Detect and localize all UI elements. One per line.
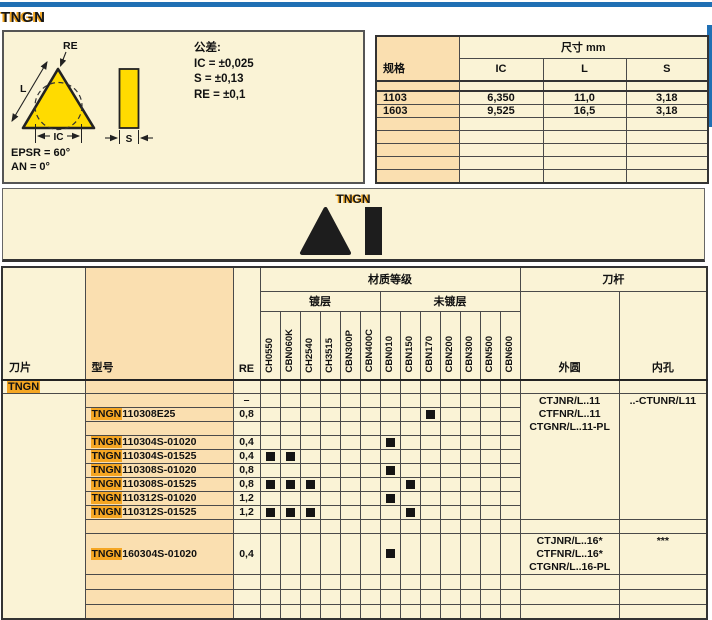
dimension-cell: [543, 144, 626, 157]
grade-mark-cell: [420, 463, 440, 477]
grade-mark-cell: [300, 463, 320, 477]
grade-mark-cell: [300, 491, 320, 505]
dimension-cell: [626, 144, 708, 157]
grade-mark-cell: [500, 393, 520, 407]
grade-mark-cell: [440, 463, 460, 477]
external-holder-cell: [520, 519, 619, 533]
grade-mark: [266, 452, 275, 461]
dimension-cell: 9,525: [459, 105, 543, 118]
grade-column-header: CBN300: [460, 311, 480, 380]
grade-group-header: 材质等级: [260, 267, 520, 291]
model-prefix: TNGN: [91, 450, 123, 462]
internal-holder-cell: ***: [619, 533, 707, 574]
grade-mark-cell: [460, 407, 480, 421]
model-prefix: TNGN: [91, 464, 123, 476]
grade-mark-cell: [260, 589, 280, 604]
grade-mark-cell: [480, 449, 500, 463]
grade-mark-cell: [300, 421, 320, 435]
grade-mark-cell: [320, 407, 340, 421]
grade-mark-cell: [400, 604, 420, 619]
s-column-header: S: [626, 58, 708, 81]
grade-mark: [386, 438, 395, 447]
grade-mark-cell: [320, 505, 340, 519]
model-prefix: TNGN: [91, 408, 123, 420]
external-column-header: 外圆: [520, 291, 619, 380]
external-holder-cell: [520, 574, 619, 589]
grade-mark-cell: [480, 380, 500, 394]
internal-holder-cell: [619, 604, 707, 619]
grade-mark-cell: [420, 533, 440, 574]
dimension-table: 规格 尺寸 mm IC L S 11036,35011,03,1816039,5…: [375, 35, 709, 184]
grade-mark-cell: [400, 463, 420, 477]
grade-mark-cell: [300, 407, 320, 421]
grade-mark-cell: [360, 380, 380, 394]
re-cell: [233, 519, 260, 533]
dimension-cell: 16,5: [543, 105, 626, 118]
band-title: TNGN: [3, 192, 704, 206]
grade-mark-cell: [260, 380, 280, 394]
an-note: AN = 0°: [11, 161, 50, 173]
grade-mark-cell: [420, 491, 440, 505]
grade-mark-cell: [340, 574, 360, 589]
spec-cell: [376, 157, 459, 170]
grade-mark-cell: [320, 589, 340, 604]
grade-mark-cell: [480, 421, 500, 435]
table-row: [2, 589, 707, 604]
grade-column-header: CBN170: [420, 311, 440, 380]
grade-mark-cell: [480, 505, 500, 519]
grade-mark-cell: [480, 393, 500, 407]
grade-column-header: CBN060K: [280, 311, 300, 380]
grade-mark-cell: [460, 449, 480, 463]
table-row: 11036,35011,03,18: [376, 91, 708, 105]
table-row: [376, 118, 708, 131]
table-row: [376, 170, 708, 183]
grade-mark-cell: [320, 449, 340, 463]
grade-mark-cell: [380, 477, 400, 491]
grade-mark-cell: [420, 505, 440, 519]
dimension-cell: [459, 81, 543, 91]
model-cell: TNGN110308E25: [85, 407, 233, 421]
grade-mark-cell: [500, 421, 520, 435]
external-holder-cell: CTJNR/L..16*CTFNR/L..16*CTGNR/L..16-PL: [520, 533, 619, 574]
grade-mark-cell: [380, 449, 400, 463]
grade-mark-cell: [440, 574, 460, 589]
dimension-cell: [626, 170, 708, 183]
grade-mark-cell: [260, 463, 280, 477]
grade-mark-cell: [280, 407, 300, 421]
grade-mark-cell: [380, 407, 400, 421]
model-prefix: TNGN: [91, 478, 123, 490]
dimension-cell: [543, 157, 626, 170]
re-dimension-label: RE: [63, 40, 78, 52]
grade-mark-cell: [500, 533, 520, 574]
dimension-cell: [543, 118, 626, 131]
section-cell: TNGN: [2, 380, 85, 394]
grade-mark-cell: [480, 574, 500, 589]
grade-mark-cell: [280, 463, 300, 477]
grade-mark-cell: [460, 505, 480, 519]
grade-name: CH0550: [265, 338, 275, 373]
grade-mark-cell: [320, 519, 340, 533]
grade-mark-cell: [280, 589, 300, 604]
grade-name: CBN500: [485, 336, 495, 372]
grade-mark: [386, 549, 395, 558]
s-dimension-label: S: [126, 134, 133, 145]
dimension-cell: [543, 81, 626, 91]
grade-mark-cell: [340, 463, 360, 477]
model-cell: TNGN110308S-01525: [85, 477, 233, 491]
grade-name: CBN060K: [285, 329, 295, 372]
table-row: –CTJNR/L..11CTFNR/L..11CTGNR/L..11-PL..-…: [2, 393, 707, 407]
grade-mark-cell: [360, 393, 380, 407]
insert-dimension-drawing: L RE IC S EPSR = 60° AN = 0°: [4, 32, 361, 178]
grade-mark-cell: [440, 435, 460, 449]
grade-mark-cell: [280, 380, 300, 394]
re-cell: 0,4: [233, 435, 260, 449]
grade-mark-cell: [400, 589, 420, 604]
grade-mark-cell: [340, 533, 360, 574]
triangle-insert-icon: [302, 209, 349, 253]
dimension-cell: [543, 170, 626, 183]
grade-mark-cell: [380, 393, 400, 407]
grade-mark-cell: [340, 589, 360, 604]
grade-mark-cell: [460, 393, 480, 407]
epsr-note: EPSR = 60°: [11, 147, 70, 159]
internal-holder-cell: [619, 574, 707, 589]
grade-mark-cell: [260, 533, 280, 574]
model-cell: [85, 519, 233, 533]
spec-cell: [376, 144, 459, 157]
grade-mark-cell: [500, 407, 520, 421]
grade-mark-cell: [300, 435, 320, 449]
model-prefix: TNGN: [91, 436, 123, 448]
grade-mark-cell: [260, 505, 280, 519]
l-column-header: L: [543, 58, 626, 81]
grade-mark-cell: [400, 380, 420, 394]
grade-mark-cell: [500, 574, 520, 589]
grade-name: CBN170: [425, 336, 435, 372]
grade-mark-cell: [440, 407, 460, 421]
dimension-cell: [626, 118, 708, 131]
grade-column-header: CBN500: [480, 311, 500, 380]
l-dimension-label: L: [20, 83, 27, 95]
grade-mark-cell: [320, 604, 340, 619]
grade-mark-cell: [460, 589, 480, 604]
grade-mark-cell: [400, 505, 420, 519]
re-cell: –: [233, 393, 260, 407]
re-cell: 1,2: [233, 491, 260, 505]
grade-mark-cell: [480, 604, 500, 619]
grade-mark-cell: [380, 421, 400, 435]
grade-mark-cell: [280, 574, 300, 589]
grade-mark-cell: [420, 393, 440, 407]
grade-mark-cell: [260, 449, 280, 463]
holder-line: CTFNR/L..11: [521, 408, 619, 421]
holder-line: CTFNR/L..16*: [521, 548, 619, 561]
spec-cell: [376, 81, 459, 91]
grade-name: CH3515: [325, 338, 335, 373]
dimension-mm-header: 尺寸 mm: [459, 36, 708, 58]
internal-holder-cell: [619, 519, 707, 533]
grade-mark-cell: [460, 491, 480, 505]
grade-mark-cell: [320, 491, 340, 505]
grade-mark-cell: [340, 477, 360, 491]
model-cell: TNGN110312S-01525: [85, 505, 233, 519]
grade-mark-cell: [320, 463, 340, 477]
grade-mark-cell: [360, 604, 380, 619]
grade-mark-cell: [460, 463, 480, 477]
grade-mark-cell: [480, 589, 500, 604]
grade-mark: [306, 480, 315, 489]
re-leader-line: [61, 52, 67, 66]
grade-mark-cell: [400, 491, 420, 505]
grade-column-header: CH2540: [300, 311, 320, 380]
model-column-header: 型号: [85, 267, 233, 380]
grade-mark-cell: [340, 491, 360, 505]
table-row: [376, 157, 708, 170]
insert-shape-band: TNGN: [2, 188, 705, 262]
grade-mark-cell: [500, 491, 520, 505]
grade-mark-cell: [300, 505, 320, 519]
uncoated-group-header: 未镀层: [380, 291, 520, 311]
re-cell: 0,8: [233, 477, 260, 491]
grade-mark-cell: [420, 380, 440, 394]
grade-mark: [266, 508, 275, 517]
dimension-cell: [626, 131, 708, 144]
grade-mark-cell: [280, 491, 300, 505]
grade-mark-cell: [320, 477, 340, 491]
grade-name: CBN200: [445, 336, 455, 372]
grade-column-header: CBN600: [500, 311, 520, 380]
grade-mark-cell: [500, 449, 520, 463]
grade-mark-cell: [460, 380, 480, 394]
grade-mark-cell: [360, 505, 380, 519]
model-prefix: TNGN: [91, 548, 123, 560]
grade-mark-cell: [300, 589, 320, 604]
bar-insert-icon: [365, 207, 382, 255]
insert-drawing-panel: L RE IC S EPSR = 60° AN = 0° 公差: IC = ±0…: [2, 30, 365, 184]
grade-mark-cell: [380, 435, 400, 449]
grade-mark-cell: [340, 407, 360, 421]
grade-mark-cell: [340, 604, 360, 619]
grade-mark-cell: [300, 574, 320, 589]
ic-dimension-label: IC: [54, 132, 64, 143]
model-cell: [85, 574, 233, 589]
grade-mark-cell: [500, 505, 520, 519]
table-row: [2, 604, 707, 619]
grade-mark-cell: [500, 435, 520, 449]
grade-mark-cell: [420, 519, 440, 533]
dimension-cell: [626, 157, 708, 170]
model-cell: [85, 589, 233, 604]
grade-mark-cell: [360, 435, 380, 449]
re-column-header: RE: [233, 267, 260, 380]
grade-mark-cell: [360, 589, 380, 604]
grade-mark-cell: [260, 491, 280, 505]
toolholder-group-header: 刀杆: [520, 267, 707, 291]
model-cell: TNGN110308S-01020: [85, 463, 233, 477]
tolerance-s: S = ±0,13: [194, 72, 254, 88]
grade-mark-cell: [360, 463, 380, 477]
grade-mark-cell: [360, 574, 380, 589]
ic-column-header: IC: [459, 58, 543, 81]
grade-mark-cell: [280, 435, 300, 449]
grade-mark-cell: [460, 604, 480, 619]
grade-mark: [306, 508, 315, 517]
holder-line: CTGNR/L..11-PL: [521, 421, 619, 434]
grade-column-header: CBN300P: [340, 311, 360, 380]
coated-group-header: 镀层: [260, 291, 380, 311]
re-cell: 0,8: [233, 463, 260, 477]
grade-mark-cell: [380, 491, 400, 505]
internal-holder-cell: [619, 380, 707, 394]
grade-mark: [406, 480, 415, 489]
grade-mark-cell: [480, 463, 500, 477]
grade-mark-cell: [420, 435, 440, 449]
grade-column-header: CBN200: [440, 311, 460, 380]
page-title: TNGN: [1, 9, 46, 26]
insert-column-merged: [2, 393, 85, 619]
spec-cell: 1103: [376, 91, 459, 105]
grade-mark-cell: [440, 491, 460, 505]
spec-cell: 1603: [376, 105, 459, 118]
grade-mark-cell: [380, 463, 400, 477]
grade-mark-cell: [480, 477, 500, 491]
grade-mark-cell: [340, 393, 360, 407]
grade-mark-cell: [500, 589, 520, 604]
grade-mark-cell: [440, 604, 460, 619]
grade-mark-cell: [280, 449, 300, 463]
grade-mark-cell: [440, 421, 460, 435]
grade-mark-cell: [440, 505, 460, 519]
model-cell: TNGN110304S-01020: [85, 435, 233, 449]
grade-mark-cell: [300, 477, 320, 491]
dimension-cell: [543, 131, 626, 144]
table-row: [376, 81, 708, 91]
grade-mark-cell: [440, 589, 460, 604]
re-cell: [233, 589, 260, 604]
table-row: [376, 131, 708, 144]
grade-mark-cell: [400, 421, 420, 435]
grade-mark-cell: [500, 477, 520, 491]
grade-mark-cell: [480, 533, 500, 574]
grade-mark-cell: [280, 533, 300, 574]
dimension-cell: 3,18: [626, 91, 708, 105]
re-cell: [233, 604, 260, 619]
spec-cell: [376, 118, 459, 131]
internal-column-header: 内孔: [619, 291, 707, 380]
grade-mark-cell: [300, 604, 320, 619]
model-cell: TNGN110304S-01525: [85, 449, 233, 463]
grade-mark-cell: [380, 604, 400, 619]
grade-mark-cell: [280, 604, 300, 619]
grade-mark-cell: [340, 380, 360, 394]
dimension-cell: 11,0: [543, 91, 626, 105]
grade-mark-cell: [480, 435, 500, 449]
grade-mark-cell: [420, 407, 440, 421]
grade-name: CBN010: [385, 336, 395, 372]
re-cell: [233, 574, 260, 589]
grade-column-header: CBN150: [400, 311, 420, 380]
holder-line: CTJNR/L..16*: [521, 535, 619, 548]
re-cell: [233, 421, 260, 435]
grade-column-header: CH3515: [320, 311, 340, 380]
grade-mark: [386, 466, 395, 475]
grade-mark-cell: [360, 477, 380, 491]
grade-mark-cell: [420, 574, 440, 589]
model-cell: [85, 421, 233, 435]
grade-mark-cell: [360, 491, 380, 505]
insert-side-view: [120, 69, 139, 128]
grade-name: CBN400C: [365, 329, 375, 372]
grade-mark-cell: [280, 519, 300, 533]
grade-mark-cell: [360, 533, 380, 574]
grade-mark-cell: [480, 519, 500, 533]
grade-mark-cell: [320, 574, 340, 589]
grade-mark: [406, 508, 415, 517]
grade-mark-cell: [400, 533, 420, 574]
table-row: [376, 144, 708, 157]
grade-name: CBN300: [465, 336, 475, 372]
table-row: [2, 519, 707, 533]
dimension-cell: [459, 157, 543, 170]
model-cell: TNGN160304S-01020: [85, 533, 233, 574]
grade-mark-cell: [300, 519, 320, 533]
dimension-cell: [459, 118, 543, 131]
grade-mark-cell: [440, 519, 460, 533]
grade-mark-cell: [420, 421, 440, 435]
grade-mark-cell: [420, 449, 440, 463]
grade-mark-cell: [380, 519, 400, 533]
grade-mark-cell: [280, 421, 300, 435]
grade-mark: [426, 410, 435, 419]
grade-mark-cell: [360, 407, 380, 421]
external-holder-cell: [520, 604, 619, 619]
tolerance-ic: IC = ±0,025: [194, 57, 254, 73]
grade-name: CBN150: [405, 336, 415, 372]
re-cell: 1,2: [233, 505, 260, 519]
grade-mark: [286, 508, 295, 517]
grade-mark-cell: [420, 589, 440, 604]
grade-mark-cell: [500, 463, 520, 477]
grade-mark-cell: [440, 477, 460, 491]
grade-mark-cell: [420, 477, 440, 491]
grade-mark-cell: [260, 421, 280, 435]
grade-mark-cell: [460, 519, 480, 533]
grade-mark-cell: [460, 574, 480, 589]
grade-mark-cell: [500, 519, 520, 533]
grade-mark-cell: [460, 477, 480, 491]
grade-mark-cell: [360, 421, 380, 435]
grade-mark-cell: [320, 380, 340, 394]
spec-cell: [376, 131, 459, 144]
table-row: TNGN: [2, 380, 707, 394]
grade-mark-cell: [500, 604, 520, 619]
insert-column-header: 刀片: [2, 267, 85, 380]
grade-mark-cell: [440, 380, 460, 394]
grade-matrix-table: 刀片 型号 RE 材质等级 刀杆 镀层 未镀层 外圆 内孔 CH0550CBN0…: [1, 266, 708, 620]
grade-mark-cell: [280, 505, 300, 519]
grade-mark-cell: [460, 533, 480, 574]
model-cell: [85, 380, 233, 394]
grade-mark-cell: [400, 519, 420, 533]
grade-column-header: CBN400C: [360, 311, 380, 380]
table-row: TNGN160304S-010200,4CTJNR/L..16*CTFNR/L.…: [2, 533, 707, 574]
grade-mark: [286, 480, 295, 489]
grade-mark-cell: [260, 393, 280, 407]
dimension-cell: 3,18: [626, 105, 708, 118]
